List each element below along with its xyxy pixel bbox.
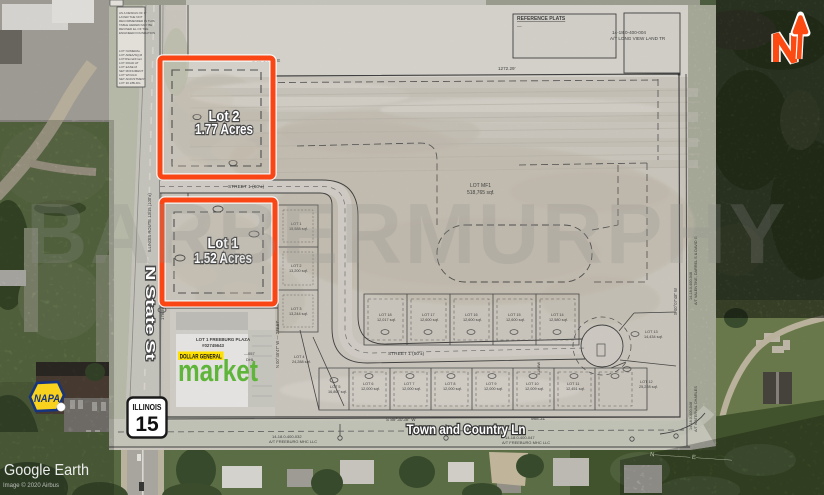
svg-text:S 00°07'48" W: S 00°07'48" W <box>673 288 678 315</box>
svg-text:#02745643: #02745643 <box>202 343 225 348</box>
svg-text:12,580 sqf.: 12,580 sqf. <box>549 318 568 322</box>
svg-text:12,000 sqf.: 12,000 sqf. <box>484 387 503 391</box>
svg-text:LOT 6: LOT 6 <box>363 382 373 386</box>
svg-text:A/T LONG VIEW LAND TR: A/T LONG VIEW LAND TR <box>610 36 666 41</box>
svg-text:market: market <box>178 353 258 388</box>
svg-text:N 00°45'47" W — 273.57': N 00°45'47" W — 273.57' <box>275 320 280 368</box>
svg-text:1.77 Acres: 1.77 Acres <box>195 121 253 138</box>
svg-text:A/T FREEBURG MHC LLC: A/T FREEBURG MHC LLC <box>502 440 550 445</box>
svg-text:LOT 17: LOT 17 <box>422 313 435 317</box>
svg-text:LOT 16: LOT 16 <box>465 313 478 317</box>
svg-text:12,000 sqf.: 12,000 sqf. <box>361 387 380 391</box>
svg-text:12,600 sqf.: 12,600 sqf. <box>420 318 439 322</box>
svg-text:LOT 14: LOT 14 <box>551 313 564 317</box>
svg-text:STREET 1 (50'±): STREET 1 (50'±) <box>388 351 425 357</box>
svg-text:LOT 5: LOT 5 <box>330 385 340 389</box>
svg-text:LOT 10: LOT 10 <box>526 382 539 386</box>
svg-text:Google Earth: Google Earth <box>4 462 89 479</box>
svg-text:LOT 1 FREEBURG PLAZA: LOT 1 FREEBURG PLAZA <box>196 337 251 342</box>
svg-text:ILLINOIS: ILLINOIS <box>133 403 163 412</box>
svg-text:REFERENCE PLATS: REFERENCE PLATS <box>517 16 566 22</box>
svg-text:LOT 8: LOT 8 <box>445 382 455 386</box>
svg-text:LOT 11: LOT 11 <box>567 382 579 386</box>
svg-text:Image © 2020 Airbus: Image © 2020 Airbus <box>3 481 60 489</box>
svg-text:BARBERMURPHY: BARBERMURPHY <box>26 187 788 282</box>
svg-text:LOT 30.2/BLDG: LOT 30.2/BLDG <box>119 81 141 85</box>
svg-text:518.8W: 518.8W <box>537 361 541 375</box>
svg-text:988.31': 988.31' <box>531 416 546 421</box>
svg-text:14-18.0-400-048: 14-18.0-400-048 <box>689 402 693 430</box>
svg-text:LOT 15: LOT 15 <box>508 313 521 317</box>
svg-text:1272.29': 1272.29' <box>498 66 516 71</box>
svg-text:12,600 sqf.: 12,600 sqf. <box>463 318 482 322</box>
svg-text:LOT 7: LOT 7 <box>404 382 414 386</box>
svg-text:12,000 sqf.: 12,000 sqf. <box>402 387 421 391</box>
svg-text:14-18.0-400-004: 14-18.0-400-004 <box>612 30 646 35</box>
svg-text:A/T WATERVAL CHARLES: A/T WATERVAL CHARLES <box>694 386 698 432</box>
svg-text:13,244 sqf.: 13,244 sqf. <box>289 312 308 316</box>
svg-text:LOT 4: LOT 4 <box>294 355 304 359</box>
svg-text:15: 15 <box>135 413 159 436</box>
svg-text:—: — <box>517 24 522 29</box>
svg-text:25,228 sqf.: 25,228 sqf. <box>639 385 658 389</box>
svg-text:12,017 sqf.: 12,017 sqf. <box>377 318 396 322</box>
svg-text:12,600 sqf.: 12,600 sqf. <box>506 318 525 322</box>
svg-text:LOT 18: LOT 18 <box>379 313 392 317</box>
svg-text:16,867 sqf.: 16,867 sqf. <box>328 390 347 394</box>
svg-text:179.86': 179.86' <box>160 306 165 320</box>
svg-text:12,451 sqf.: 12,451 sqf. <box>566 387 585 391</box>
svg-text:LOT 9: LOT 9 <box>486 382 496 386</box>
svg-text:24,288 sqf.: 24,288 sqf. <box>292 360 311 364</box>
svg-text:12,000 sqf.: 12,000 sqf. <box>443 387 462 391</box>
svg-text:12,009 sqf.: 12,009 sqf. <box>525 387 544 391</box>
svg-text:Town and Country Ln: Town and Country Ln <box>407 422 526 437</box>
svg-text:LOT 3: LOT 3 <box>291 307 301 311</box>
svg-text:LOT 12: LOT 12 <box>640 380 653 384</box>
svg-text:14,434 sqf.: 14,434 sqf. <box>644 335 663 339</box>
svg-text:ENGINEER FOUNDATION: ENGINEER FOUNDATION <box>119 31 155 35</box>
svg-text:NAPA: NAPA <box>34 393 60 405</box>
svg-text:LOT 13: LOT 13 <box>645 330 658 334</box>
svg-text:A/T FREEBURG MHC LLC: A/T FREEBURG MHC LLC <box>269 439 317 444</box>
